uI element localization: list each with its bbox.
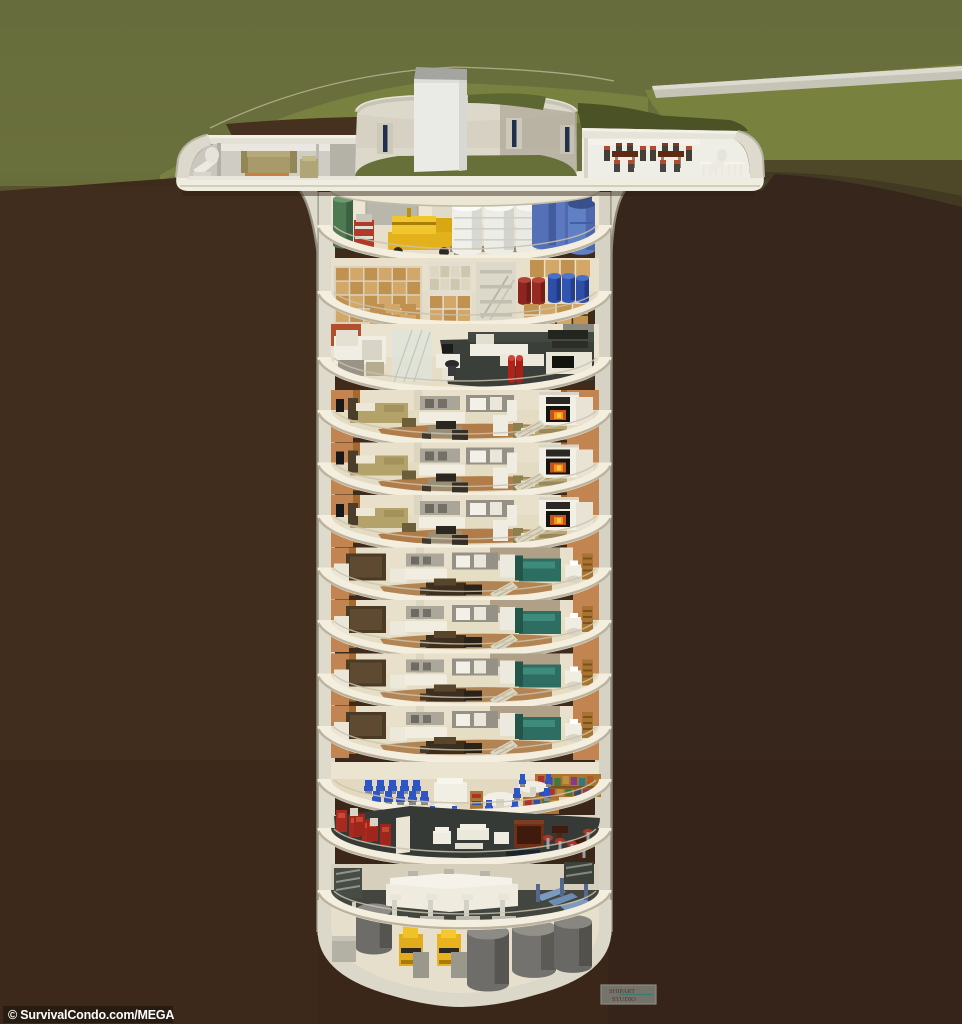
- svg-text:© SurvivalCondo.com/MEGA: © SurvivalCondo.com/MEGA: [8, 1008, 174, 1022]
- svg-text:STUDIO: STUDIO: [612, 996, 636, 1003]
